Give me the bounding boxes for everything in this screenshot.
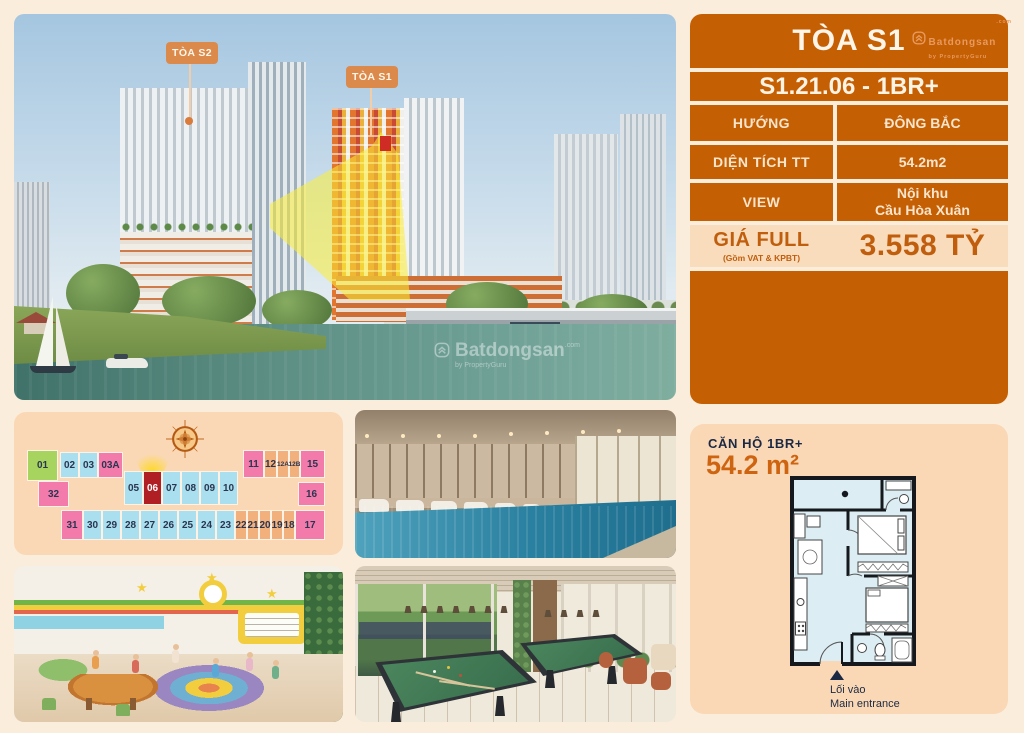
tower-s2 <box>120 88 252 238</box>
direction-value: ĐÔNG BẮC <box>837 105 1008 141</box>
brand-logo: Batdongsan.com by PropertyGuru <box>912 19 1012 60</box>
view-label: VIEW <box>690 183 833 221</box>
panel-title: TÒA S1 Batdongsan.com by PropertyGuru <box>690 14 1008 68</box>
unit-cell-12B: 12B <box>289 450 300 478</box>
flyer-page: TÒA S2 TÒA S1 Batdongsan.com by Property… <box>0 0 1024 733</box>
unit-cell-02: 02 <box>60 452 79 478</box>
row-area: DIỆN TÍCH TT 54.2m2 <box>690 145 1008 179</box>
unit-cell-12: 12 <box>264 450 277 478</box>
unit-location-marker <box>380 136 391 151</box>
tower-s2-label: TÒA S2 <box>166 42 218 64</box>
unit-cell-26: 26 <box>159 510 178 540</box>
entrance-label-en: Main entrance <box>830 698 900 712</box>
unit-cell-12A: 12A <box>277 450 289 478</box>
unit-cell-03A: 03A <box>98 452 123 478</box>
row-view: VIEW Nội khu Cầu Hòa Xuân <box>690 183 1008 221</box>
photo-watermark: Batdongsan.com by PropertyGuru <box>434 342 634 369</box>
tower-title: TÒA S1 <box>792 24 905 58</box>
area-value: 54.2m2 <box>837 145 1008 179</box>
unit-cell-31: 31 <box>61 510 83 540</box>
unit-cell-07: 07 <box>162 471 181 505</box>
tower-s1-label: TÒA S1 <box>346 66 398 88</box>
floorplate-units: 01020303A32050607080910111212A12B1516313… <box>14 412 343 555</box>
unit-cell-10: 10 <box>219 471 238 505</box>
price-label: GIÁ FULL <box>713 229 809 252</box>
price-sublabel: (Gồm VAT & KPBT) <box>723 253 800 263</box>
unit-cell-01: 01 <box>27 450 58 481</box>
motorboat <box>106 358 148 368</box>
unit-cell-24: 24 <box>197 510 216 540</box>
unit-cell-03: 03 <box>79 452 98 478</box>
unit-cell-16: 16 <box>298 482 325 506</box>
amenity-kids-playroom-photo: ★ ★ ★ <box>14 566 343 722</box>
floorplate-diagram: 01020303A32050607080910111212A12B1516313… <box>14 412 343 555</box>
unit-cell-32: 32 <box>38 481 69 507</box>
unit-cell-19: 19 <box>271 510 283 540</box>
entrance-label-vi: Lối vào <box>830 684 900 698</box>
unit-cell-06: 06 <box>143 471 162 505</box>
unit-cell-25: 25 <box>178 510 197 540</box>
unit-cell-08: 08 <box>181 471 200 505</box>
unit-cell-29: 29 <box>102 510 121 540</box>
unit-code: S1.21.06 - 1BR+ <box>690 72 1008 101</box>
price-value: 3.558 TỶ <box>837 225 1008 267</box>
unit-cell-21: 21 <box>247 510 259 540</box>
area-label: DIỆN TÍCH TT <box>690 145 833 179</box>
apartment-area: 54.2 m² <box>706 450 799 481</box>
unit-cell-20: 20 <box>259 510 271 540</box>
amenity-pool-photo <box>355 410 676 558</box>
entrance-arrow-icon <box>830 670 844 680</box>
unit-cell-17: 17 <box>295 510 325 540</box>
unit-cell-18: 18 <box>283 510 295 540</box>
view-value: Nội khu Cầu Hòa Xuân <box>837 183 1008 221</box>
unit-cell-09: 09 <box>200 471 219 505</box>
unit-cell-11: 11 <box>243 450 264 478</box>
price-row: GIÁ FULL (Gồm VAT & KPBT) 3.558 TỶ <box>690 225 1008 267</box>
floorplan-drawing <box>790 476 916 671</box>
direction-label: HƯỚNG <box>690 105 833 141</box>
unit-cell-15: 15 <box>300 450 325 478</box>
unit-cell-27: 27 <box>140 510 159 540</box>
main-entrance-note: Lối vào Main entrance <box>830 670 900 711</box>
row-direction: HƯỚNG ĐÔNG BẮC <box>690 105 1008 141</box>
unit-cell-05: 05 <box>124 471 143 505</box>
unit-cell-28: 28 <box>121 510 140 540</box>
unit-cell-30: 30 <box>83 510 102 540</box>
unit-cell-23: 23 <box>216 510 235 540</box>
unit-cell-22: 22 <box>235 510 247 540</box>
apartment-type: CĂN HỘ 1BR+ <box>708 436 803 451</box>
brand-logo-icon <box>912 19 926 53</box>
watermark-logo-icon <box>434 342 450 363</box>
apartment-plan-panel: CĂN HỘ 1BR+ 54.2 m² <box>690 424 1008 714</box>
main-render-photo: TÒA S2 TÒA S1 Batdongsan.com by Property… <box>14 14 676 400</box>
amenity-billiards-photo <box>355 566 676 722</box>
unit-info-panel: TÒA S1 Batdongsan.com by PropertyGuru S1… <box>690 14 1008 404</box>
